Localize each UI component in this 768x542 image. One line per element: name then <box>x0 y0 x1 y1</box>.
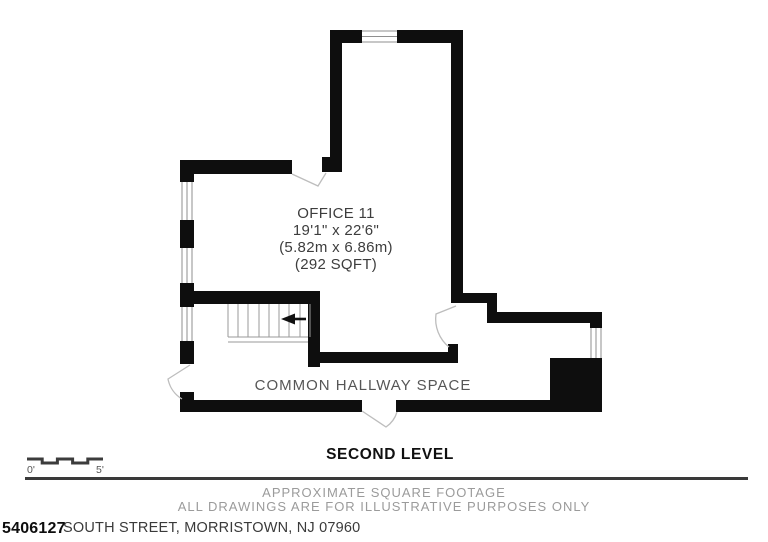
wall <box>451 30 463 303</box>
door-swing-icon <box>362 411 397 427</box>
floor-plan-canvas: OFFICE 11 19'1" x 22'6" (5.82m x 6.86m) … <box>0 0 768 542</box>
office-dimensions-imperial-label: 19'1" x 22'6" <box>293 222 379 239</box>
scale-start-label: 0' <box>27 464 35 476</box>
window-icon <box>180 248 194 283</box>
wall <box>322 157 342 172</box>
windows <box>180 30 602 358</box>
footer: APPROXIMATE SQUARE FOOTAGE ALL DRAWINGS … <box>2 477 748 537</box>
listing-number: 5406127 <box>2 520 66 537</box>
wall <box>180 400 362 412</box>
window-icon <box>590 328 602 358</box>
footer-divider <box>25 477 748 480</box>
scale-bar: 0' 5' <box>27 459 104 476</box>
walls <box>180 30 602 412</box>
wall <box>550 358 602 412</box>
window-icon <box>180 182 194 220</box>
stairs-direction-arrow-icon <box>281 314 306 325</box>
wall <box>451 293 497 303</box>
property-address: SOUTH STREET, MORRISTOWN, NJ 07960 <box>63 520 360 536</box>
scale-end-label: 5' <box>96 464 104 476</box>
wall <box>180 220 194 248</box>
scale-bar-icon <box>27 459 103 463</box>
wall <box>487 312 602 323</box>
wall <box>314 352 450 363</box>
wall <box>396 400 554 412</box>
wall <box>180 291 320 304</box>
window-icon <box>180 307 194 341</box>
wall <box>180 341 194 364</box>
footer-disclaimer-line1: APPROXIMATE SQUARE FOOTAGE <box>262 485 506 500</box>
level-title: SECOND LEVEL <box>326 446 454 463</box>
wall <box>448 344 458 363</box>
office-area-label: (292 SQFT) <box>295 256 377 273</box>
hallway-label: COMMON HALLWAY SPACE <box>255 377 472 394</box>
office-dimensions-metric-label: (5.82m x 6.86m) <box>279 239 393 256</box>
stairs <box>228 304 310 342</box>
wall <box>330 30 342 158</box>
wall <box>180 160 292 174</box>
footer-disclaimer-line2: ALL DRAWINGS ARE FOR ILLUSTRATIVE PURPOS… <box>178 499 591 514</box>
wall <box>180 160 194 182</box>
door-swing-icon <box>292 173 326 186</box>
office-name-label: OFFICE 11 <box>297 205 374 222</box>
door-swing-icon <box>436 306 456 347</box>
wall <box>590 312 602 328</box>
window-icon <box>362 30 397 43</box>
